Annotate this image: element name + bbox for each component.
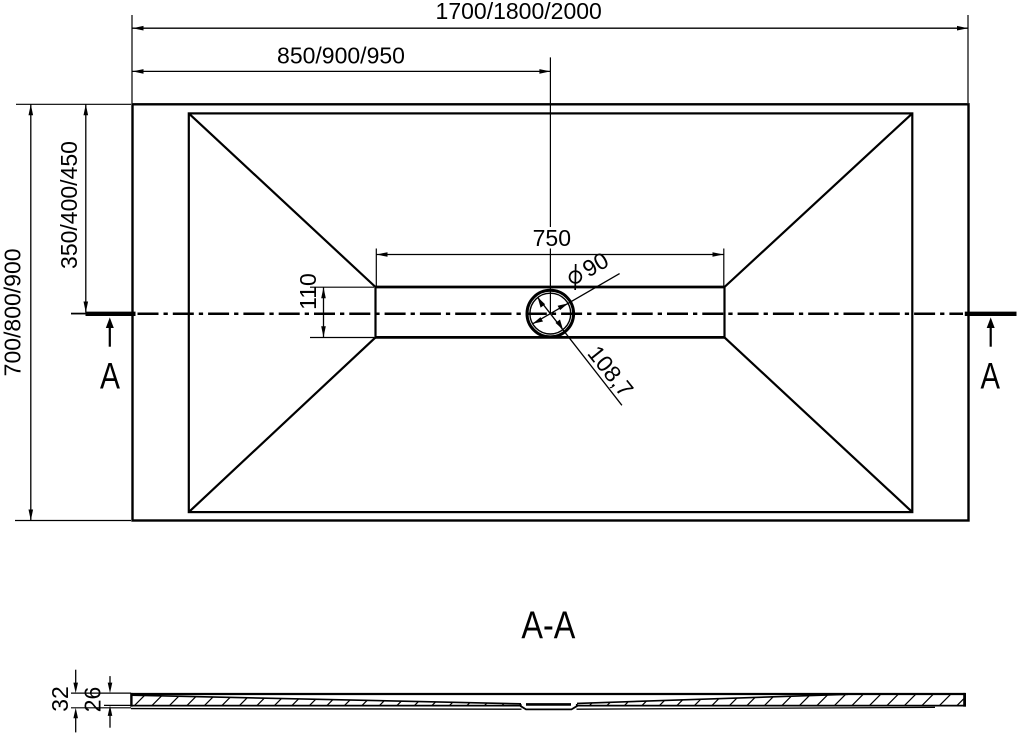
svg-text:32: 32 (47, 686, 73, 712)
svg-text:350/400/450: 350/400/450 (56, 141, 82, 269)
svg-text:700/800/900: 700/800/900 (0, 248, 25, 376)
svg-text:850/900/950: 850/900/950 (277, 42, 405, 68)
svg-text:A-A: A-A (521, 604, 575, 647)
svg-text:110: 110 (295, 273, 321, 310)
svg-text:A: A (980, 356, 1000, 397)
svg-text:1700/1800/2000: 1700/1800/2000 (436, 0, 602, 24)
svg-text:A: A (100, 356, 120, 397)
svg-text:26: 26 (80, 687, 106, 713)
svg-text:750: 750 (533, 225, 571, 251)
